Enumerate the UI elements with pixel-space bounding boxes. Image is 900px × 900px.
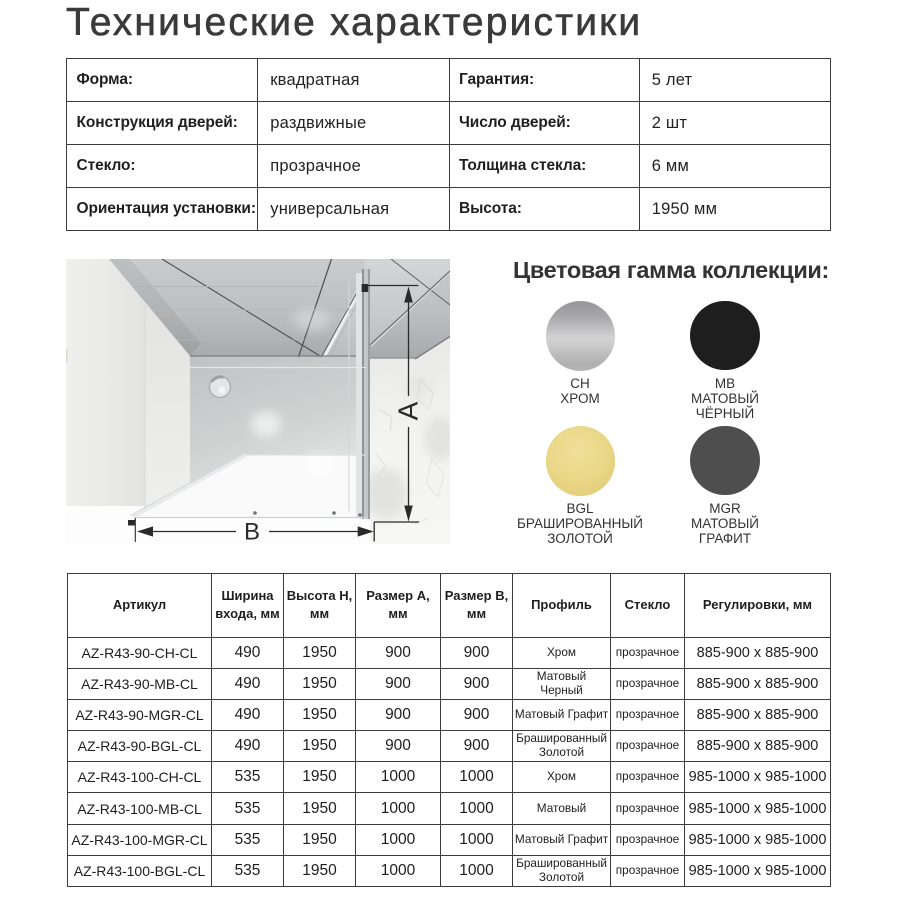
svg-text:B: B — [244, 519, 260, 545]
svg-text:A: A — [393, 401, 424, 420]
